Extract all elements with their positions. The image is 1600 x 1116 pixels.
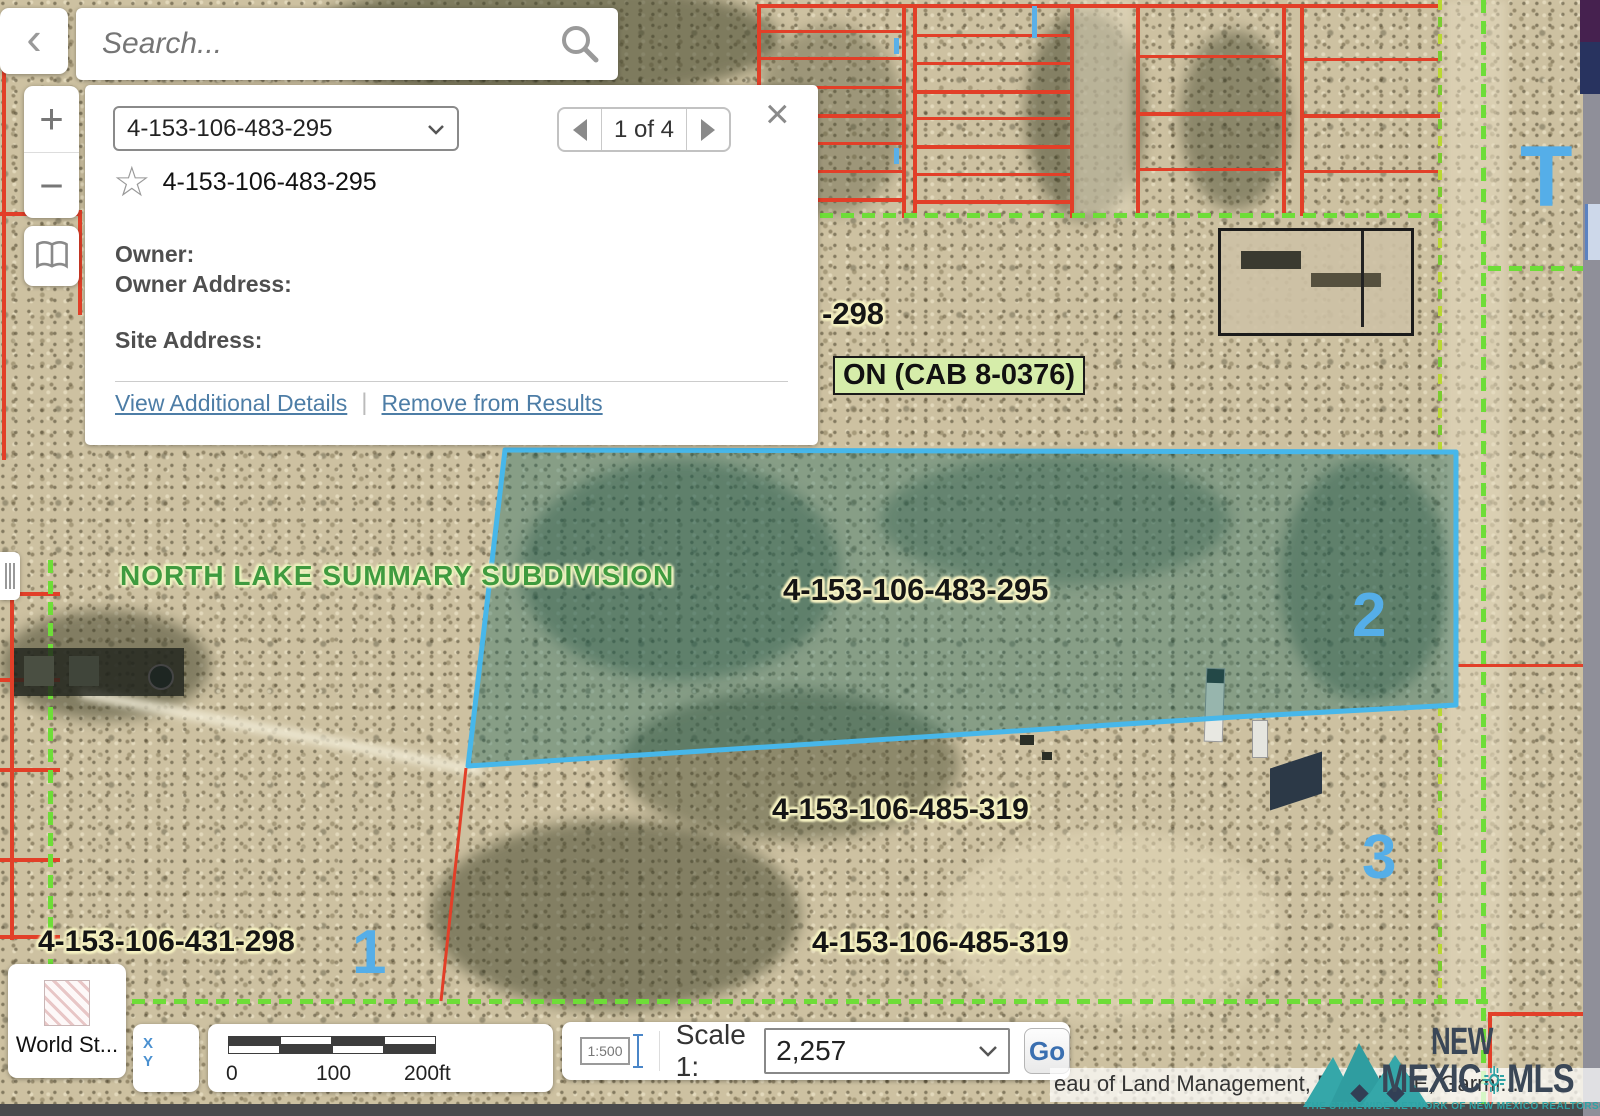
- scale-value-input[interactable]: [764, 1028, 1010, 1074]
- remove-from-results-link[interactable]: Remove from Results: [382, 390, 603, 417]
- cab-label: ON (CAB 8-0376): [833, 356, 1085, 395]
- starred-parcel-id: 4-153-106-483-295: [163, 168, 377, 197]
- chevron-down-icon[interactable]: [978, 1044, 998, 1058]
- lot-number: 3: [1362, 822, 1396, 893]
- search-input[interactable]: [100, 26, 558, 62]
- site-address-label: Site Address:: [115, 327, 262, 354]
- prev-arrow-icon: [573, 119, 587, 141]
- basemap-label: World St...: [8, 1032, 126, 1058]
- link-separator: |: [361, 389, 367, 417]
- xy-grid-icon: XY: [143, 1035, 189, 1081]
- lot-number: 1: [352, 917, 386, 988]
- zoom-in-button[interactable]: +: [24, 86, 79, 153]
- grip-icon: [5, 563, 7, 589]
- scalebar-tick: 200ft: [404, 1062, 451, 1086]
- sidebar-drag-handle[interactable]: [0, 552, 20, 600]
- search-bar[interactable]: [76, 8, 618, 80]
- scalebar-tick: 100: [316, 1062, 351, 1086]
- parcel-label: 4-153-106-485-319: [772, 793, 1029, 827]
- close-panel-button[interactable]: ×: [765, 93, 790, 135]
- owner-label: Owner:: [115, 241, 194, 268]
- parcel-label: 4-153-106-485-319: [812, 926, 1069, 960]
- prev-result-button[interactable]: [559, 109, 602, 150]
- back-chevron-icon: ‹: [26, 15, 41, 61]
- lot-number: 2: [1352, 580, 1386, 651]
- panel-divider: [115, 381, 788, 382]
- widget-divider: [659, 1031, 660, 1071]
- scale-ratio-icon: 1:500: [580, 1034, 643, 1068]
- adjacent-window-sliver: [1580, 42, 1600, 94]
- parcel-results-panel: 4-153-106-483-295 1 of 4 × ☆ 4-153-106-4…: [85, 85, 818, 445]
- pager-status: 1 of 4: [602, 109, 686, 150]
- view-additional-details-link[interactable]: View Additional Details: [115, 390, 347, 417]
- scalebar-graphic: [228, 1036, 436, 1054]
- scale-widget: 1:500 Scale 1: Go: [562, 1022, 1070, 1080]
- search-icon[interactable]: [558, 22, 602, 66]
- parcel-label: 4-153-106-431-298: [38, 925, 295, 959]
- parcel-label: 4-153-106-483-295: [783, 572, 1048, 608]
- star-icon[interactable]: ☆: [113, 161, 151, 203]
- scalebar-tick: 0: [226, 1062, 238, 1086]
- logo-tagline: THE STATEWIDE NETWORK OF NEW MEXICO REAL…: [1305, 1101, 1600, 1112]
- ibeam-cursor-icon: [633, 1034, 643, 1068]
- panel-links: View Additional Details | Remove from Re…: [115, 389, 603, 417]
- parcel-map-app: NORTH LAKE SUMMARY SUBDIVISION 4-153-106…: [0, 0, 1600, 1116]
- result-pager: 1 of 4: [557, 107, 731, 152]
- bookmarks-button[interactable]: [24, 226, 79, 286]
- star-result-row: ☆ 4-153-106-483-295: [113, 161, 377, 203]
- zoom-out-button[interactable]: −: [24, 153, 79, 218]
- basemap-thumbnail-icon: [44, 980, 90, 1026]
- zia-symbol-icon: [1482, 1066, 1505, 1094]
- book-icon: [34, 240, 70, 272]
- parcel-label: -298: [822, 296, 884, 332]
- parcel-select-value: 4-153-106-483-295: [127, 115, 333, 143]
- basemap-button[interactable]: World St...: [8, 964, 126, 1078]
- next-arrow-icon: [701, 119, 715, 141]
- next-result-button[interactable]: [686, 109, 729, 150]
- coordinates-button[interactable]: XY: [133, 1024, 199, 1092]
- logo-line2: MEXIC MLS: [1381, 1057, 1574, 1102]
- owner-address-label: Owner Address:: [115, 271, 292, 298]
- scale-label: Scale 1:: [676, 1019, 752, 1083]
- adjacent-window-sliver: [1585, 204, 1600, 260]
- parcel-select[interactable]: 4-153-106-483-295: [113, 106, 459, 151]
- back-button[interactable]: ‹: [0, 8, 68, 74]
- zoom-controls: + −: [24, 86, 79, 218]
- subdivision-label: NORTH LAKE SUMMARY SUBDIVISION: [120, 560, 674, 592]
- chevron-down-icon: [427, 123, 445, 135]
- nmmls-logo: NEW MEXIC MLS THE STATEWIDE NETWORK OF N…: [1295, 1005, 1600, 1113]
- adjacent-window-sliver: [1580, 0, 1600, 42]
- scalebar-widget: 0 100 200ft: [208, 1024, 553, 1092]
- map-letter-t: T: [1520, 128, 1573, 227]
